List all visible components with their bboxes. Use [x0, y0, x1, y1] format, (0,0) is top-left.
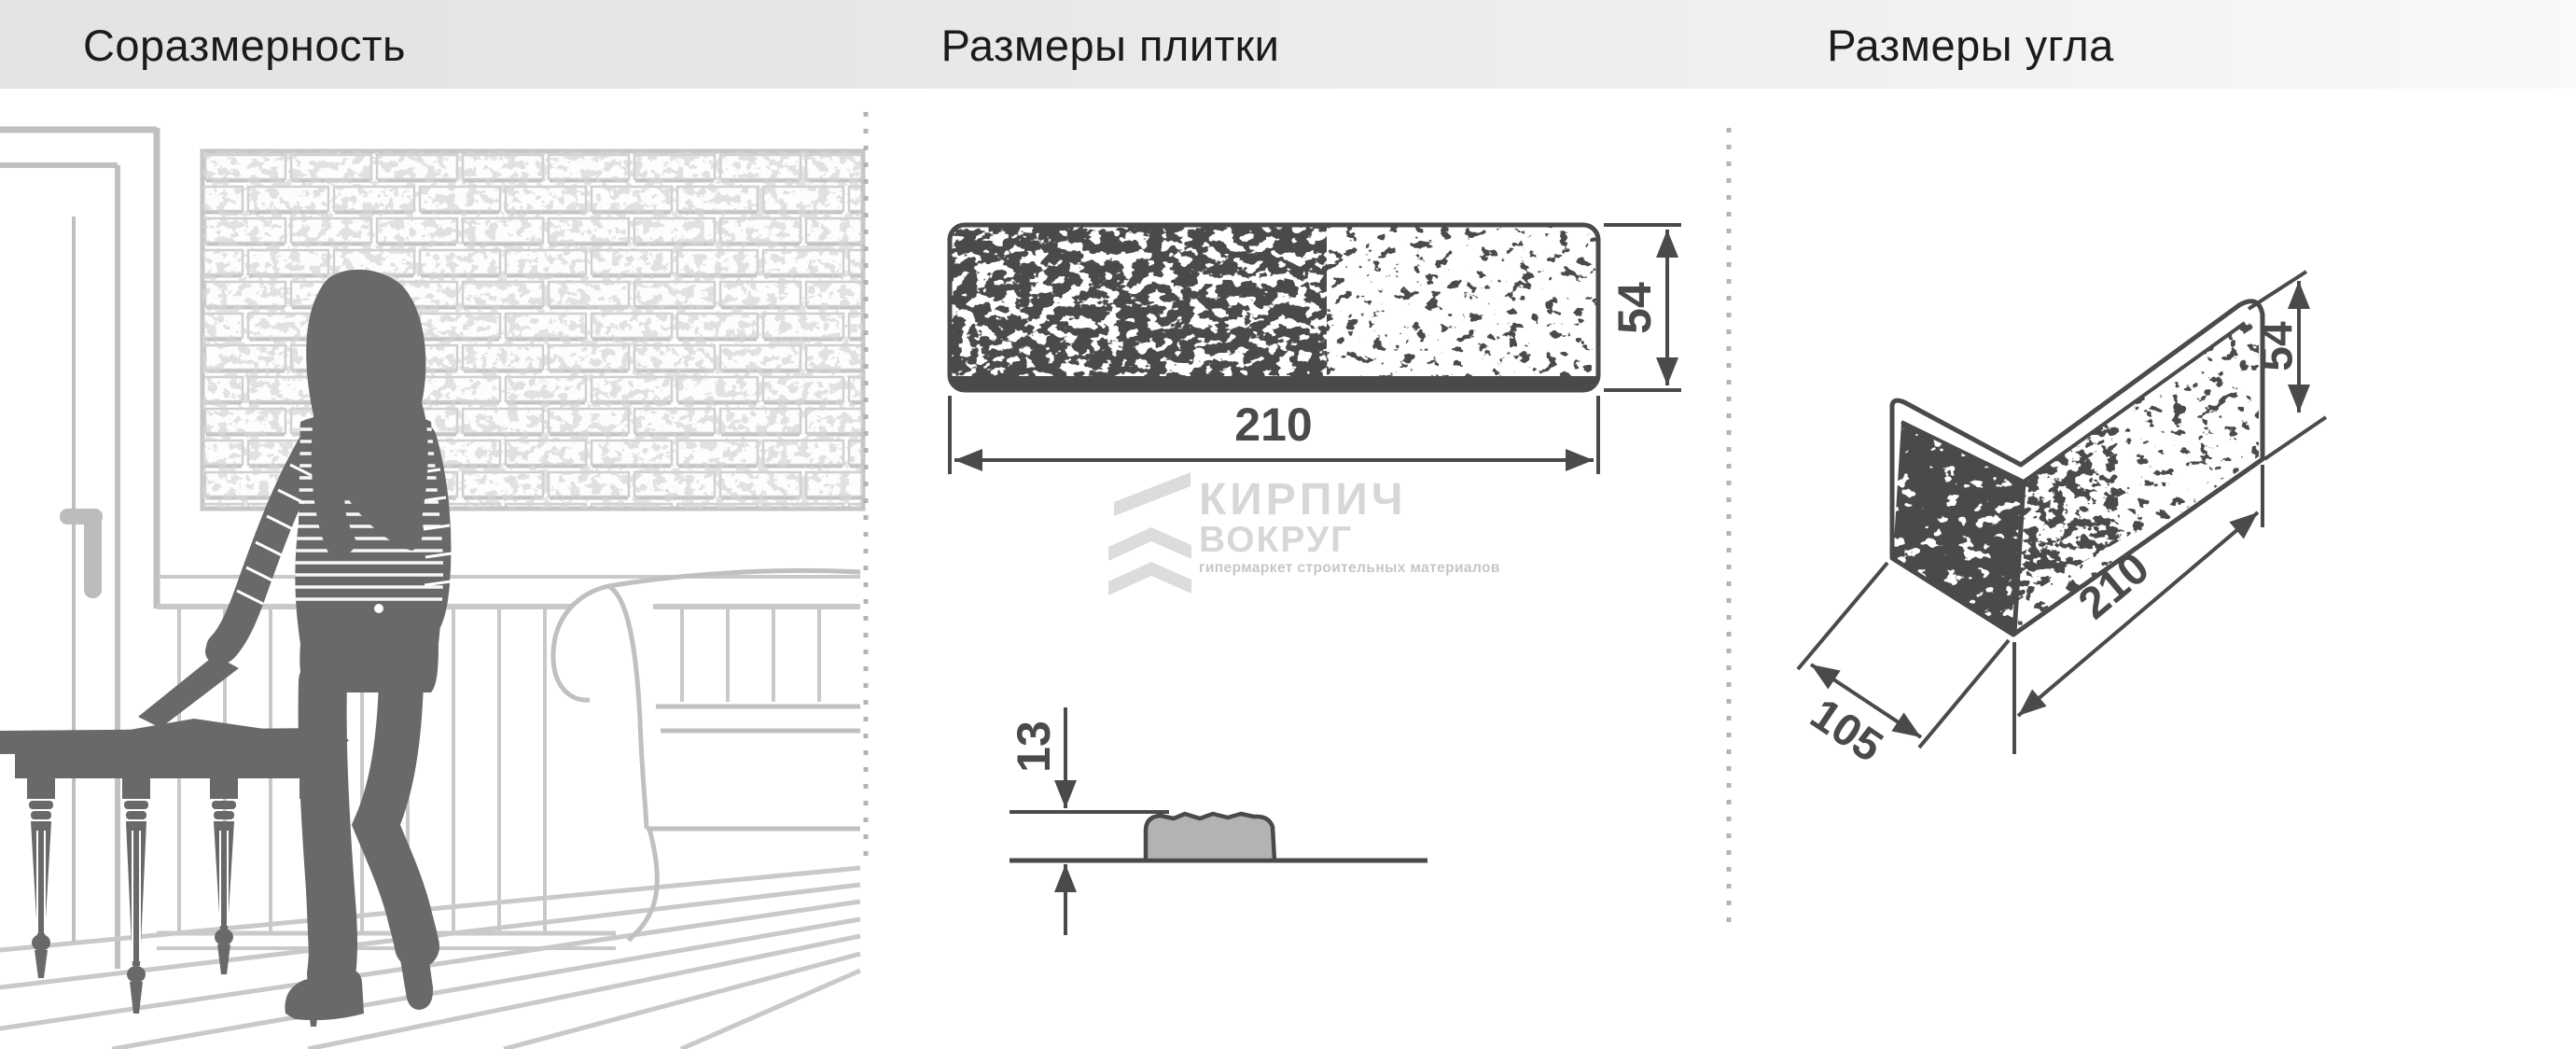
pants-button: [374, 604, 383, 613]
woman-hair: [306, 270, 428, 555]
product-dimensions-infographic: Соразмерность Размеры плитки Размеры угл…: [0, 0, 2576, 1049]
brand-name-line1: КИРПИЧ: [1199, 475, 1407, 524]
woman-foot-flat: [285, 971, 364, 1020]
tile-texture: [950, 225, 1598, 390]
woman-leg-straight: [323, 681, 333, 974]
brand-tagline: гипермаркет строительных материалов: [1199, 560, 1500, 576]
tile-width-dimension: 210: [950, 396, 1598, 474]
door-frame: [0, 128, 157, 608]
tile-height-value: 54: [1608, 282, 1661, 334]
drawing-canvas: КИРПИЧ ВОКРУГ гипермаркет строительных м…: [0, 0, 2576, 1049]
tile-height-dimension: 54: [1604, 225, 1681, 390]
table-apron: [15, 752, 323, 778]
corner-depth-value: 105: [1802, 690, 1891, 773]
tile-dimensions-drawing: КИРПИЧ ВОКРУГ гипермаркет строительных м…: [950, 225, 1681, 935]
tile-width-value: 210: [1234, 399, 1312, 451]
profile-cross-section: [1146, 814, 1274, 860]
table-leg: [122, 778, 150, 1014]
woman-leg-crossed: [376, 681, 417, 946]
tile-thickness-value: 13: [1008, 720, 1060, 773]
tile-face-view: [950, 225, 1598, 390]
proportionality-scene: [0, 128, 863, 1049]
door-handle: [84, 509, 102, 598]
corner-dimensions-drawing: 54 210 105: [1798, 272, 2326, 772]
corner-height-value: 54: [2253, 321, 2303, 371]
sofa-leg: [629, 829, 657, 941]
brand-icon: [1108, 472, 1191, 595]
laptop: [97, 655, 284, 748]
sofa: [553, 570, 860, 941]
table-leg: [210, 778, 238, 974]
woman-hand: [205, 638, 231, 664]
brand-name-line2: ВОКРУГ: [1199, 520, 1353, 560]
tile-side-profile: 13: [1008, 707, 1427, 935]
brand-watermark: КИРПИЧ ВОКРУГ гипермаркет строительных м…: [1108, 472, 1500, 595]
